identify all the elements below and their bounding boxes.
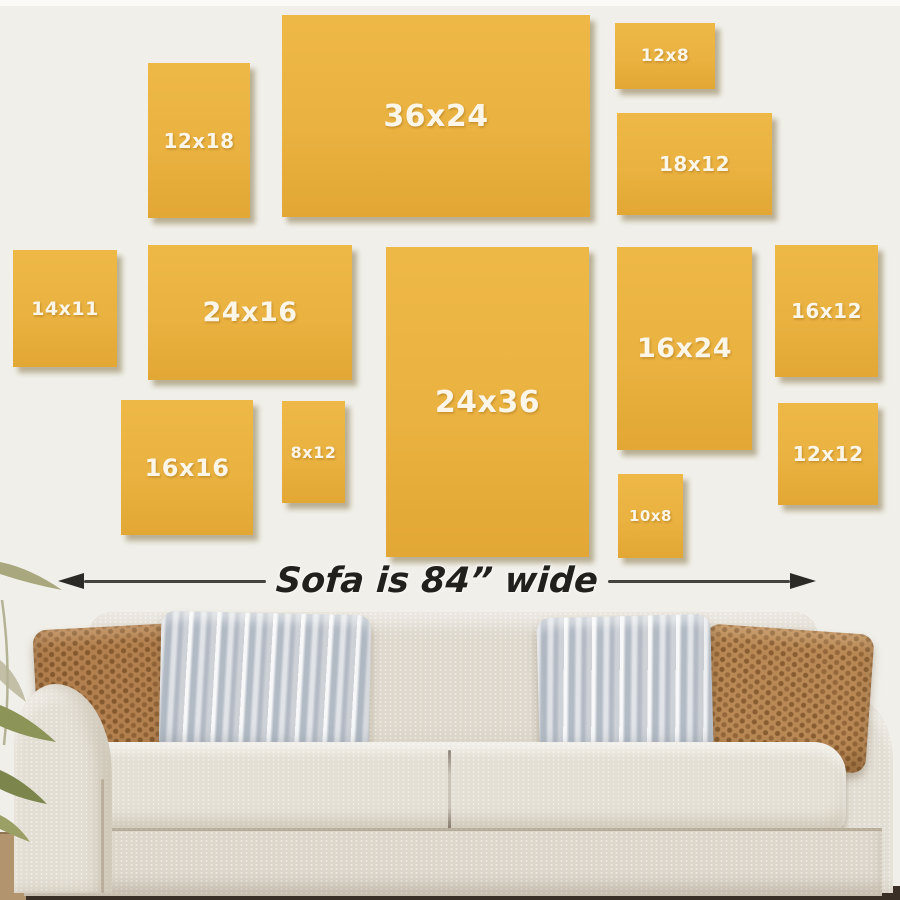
canvas-size-label: 36x24 <box>383 99 488 134</box>
canvas-36x24: 36x24 <box>282 15 590 217</box>
sofa-base <box>24 828 882 896</box>
sofa-width-text: Sofa is 84” wide <box>275 561 600 601</box>
canvas-14x11: 14x11 <box>13 250 117 367</box>
canvas-size-label: 8x12 <box>291 443 337 462</box>
top-border <box>0 0 900 6</box>
canvas-size-label: 10x8 <box>629 507 672 525</box>
sofa-seat-cushion <box>56 742 846 836</box>
arrow-line-right <box>608 580 790 583</box>
canvas-size-label: 12x12 <box>792 442 863 466</box>
pillow-gray-left <box>159 611 372 756</box>
canvas-size-label: 24x36 <box>435 385 540 420</box>
canvas-size-label: 18x12 <box>659 152 730 176</box>
canvas-size-label: 12x18 <box>163 129 234 153</box>
canvas-12x8: 12x8 <box>615 23 715 89</box>
canvas-10x8: 10x8 <box>618 474 683 558</box>
canvas-16x12: 16x12 <box>775 245 878 377</box>
right-arrowhead-icon <box>790 573 816 589</box>
canvas-size-label: 16x24 <box>637 333 732 364</box>
arrow-line-left <box>84 580 266 583</box>
canvas-18x12: 18x12 <box>617 113 772 215</box>
canvas-12x18: 12x18 <box>148 63 250 218</box>
wall-art-size-guide: 12x18 36x24 12x8 18x12 14x11 24x16 24x36… <box>0 0 900 900</box>
plant-leaves <box>0 540 90 900</box>
sofa-width-annotation: Sofa is 84” wide <box>58 560 816 602</box>
canvas-16x16: 16x16 <box>121 400 253 535</box>
pillow-gray-right <box>536 614 714 759</box>
canvas-size-label: 14x11 <box>31 298 99 320</box>
canvas-24x36: 24x36 <box>386 247 589 557</box>
canvas-size-label: 12x8 <box>641 46 689 66</box>
canvas-12x12: 12x12 <box>778 403 878 505</box>
canvas-8x12: 8x12 <box>282 401 345 503</box>
canvas-size-label: 24x16 <box>202 297 297 328</box>
canvas-16x24: 16x24 <box>617 247 752 450</box>
canvas-24x16: 24x16 <box>148 245 352 380</box>
canvas-size-label: 16x16 <box>145 454 230 482</box>
canvas-size-label: 16x12 <box>791 299 862 323</box>
